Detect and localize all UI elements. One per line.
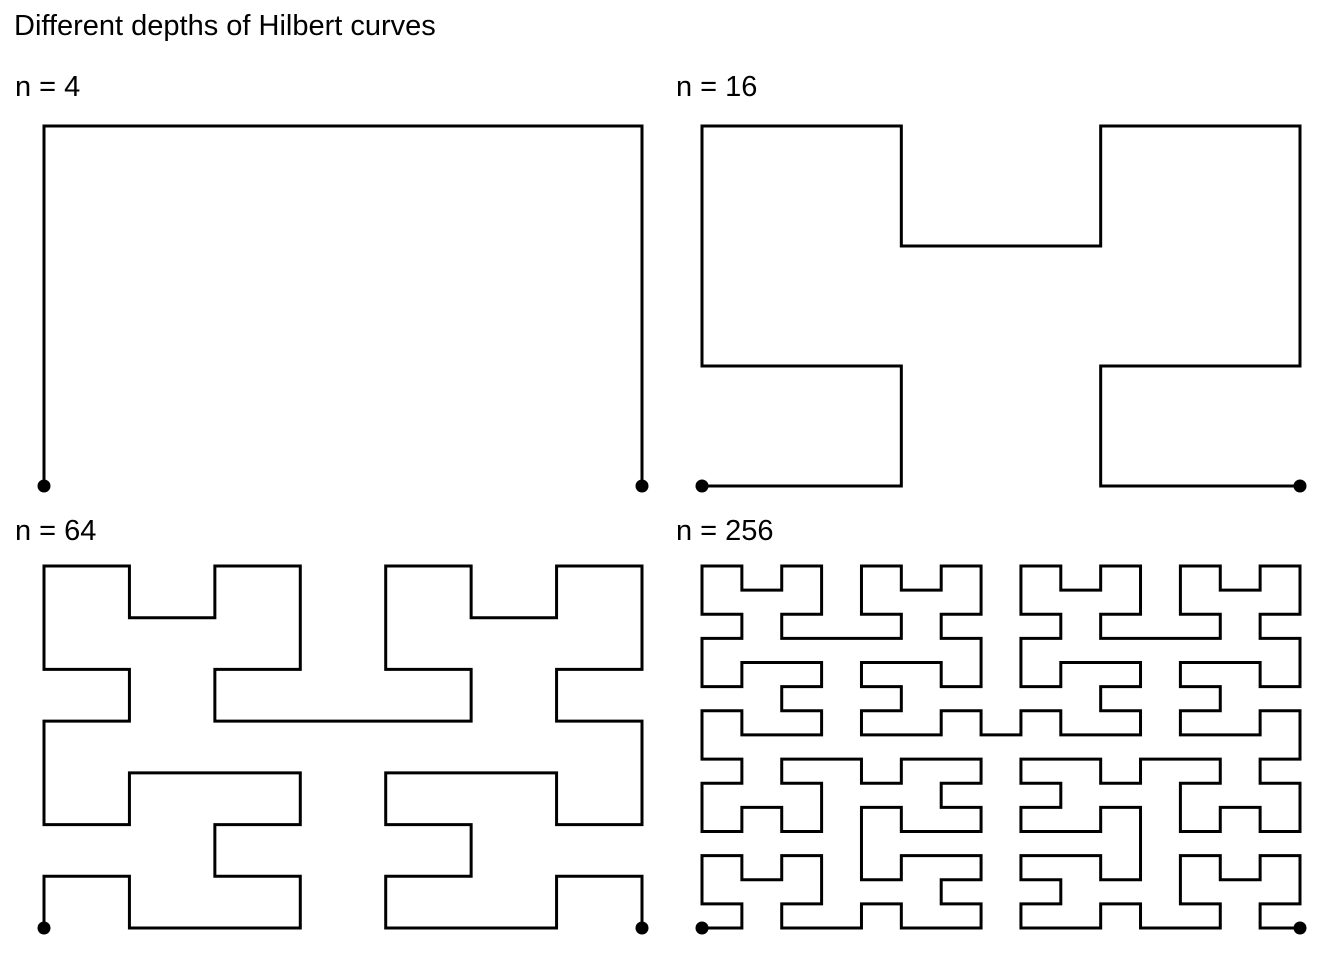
start-point-marker-n4 [38, 480, 51, 493]
hilbert-path-n16 [702, 126, 1300, 486]
end-point-marker-n4 [636, 480, 649, 493]
hilbert-path-n256 [702, 566, 1300, 928]
hilbert-path-n64 [44, 566, 642, 928]
figure-root: Different depths of Hilbert curves n = 4… [0, 0, 1344, 960]
hilbert-curve-panel-n4 [38, 126, 649, 493]
end-point-marker-n16 [1294, 480, 1307, 493]
hilbert-curve-panel-n256 [696, 566, 1307, 935]
hilbert-curve-panel-n64 [38, 566, 649, 935]
hilbert-path-n4 [44, 126, 642, 486]
hilbert-curve-panel-n16 [696, 126, 1307, 493]
end-point-marker-n64 [636, 922, 649, 935]
hilbert-curves-canvas [0, 0, 1344, 960]
start-point-marker-n256 [696, 922, 709, 935]
start-point-marker-n64 [38, 922, 51, 935]
end-point-marker-n256 [1294, 922, 1307, 935]
start-point-marker-n16 [696, 480, 709, 493]
